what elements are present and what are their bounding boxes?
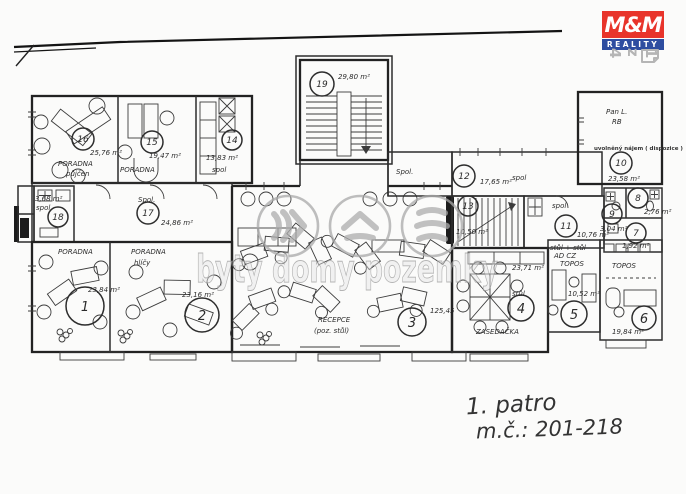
room-4-label2: stůl — [512, 290, 525, 298]
room-1-number: 1 — [81, 300, 89, 315]
room-6-number: 6 — [640, 312, 648, 327]
room-6-label: TOPOS — [612, 262, 637, 270]
room-17-label: Spol. — [138, 196, 155, 204]
room-9-area: 3,04 m² — [600, 225, 628, 233]
room-1-label: PORADNA — [58, 248, 93, 256]
bottom-steps — [60, 340, 646, 361]
plant-scribbles — [57, 329, 272, 346]
room-17-number: 17 — [142, 209, 154, 219]
room-10-note-print: uvolněný nájem ( dispozice ) — [594, 145, 683, 152]
logo-brand: M&M — [602, 11, 664, 38]
room-10-note-hand1: Pan L. — [606, 108, 627, 116]
handwritten-room-range-note: m.č.: 201-218 — [476, 414, 624, 443]
room-10-number: 10 — [615, 159, 627, 169]
room-12-label: spol — [512, 174, 526, 182]
room-15-number: 15 — [146, 138, 158, 148]
left-wing: 16 25,76 m² PORADNA půjčen 15 19,47 m² P… — [18, 96, 272, 352]
room-18-number: 18 — [52, 213, 64, 223]
room-10-area: 23,58 m² — [608, 175, 640, 183]
room-19-number: 19 — [316, 80, 328, 90]
room-12-area: 17,65 m² — [480, 178, 512, 186]
room-12-number: 12 — [458, 172, 470, 182]
room-1-area: 23,84 m² — [88, 286, 120, 294]
room-7-number: 7 — [633, 229, 639, 239]
landing-label: Spol. — [396, 168, 413, 176]
room-15-area: 19,47 m² — [149, 152, 181, 160]
room-5-area: 10,52 m² — [568, 290, 600, 298]
room-4-number: 4 — [517, 302, 525, 317]
room-5-label2: AD CZ — [553, 252, 576, 260]
room-11-label: spol — [552, 202, 566, 210]
room-2-label2: hlíčy — [134, 259, 151, 267]
room-5-label3: TOPOS — [560, 260, 585, 268]
document-icon — [640, 48, 660, 64]
room-15-label: PORADNA — [120, 166, 155, 174]
room-8-area: 2,76 m² — [644, 208, 672, 216]
scan-artifacts — [14, 31, 562, 244]
room-5-number: 5 — [570, 308, 578, 323]
room-2-number: 2 — [198, 309, 206, 324]
room-9-number: 9 — [609, 210, 615, 220]
room-3-label: RECEPCE — [318, 316, 351, 324]
room-3-label2: (poz. stůl) — [314, 327, 349, 335]
room-5-label: stůl + stůl — [550, 244, 586, 252]
room-16-number: 16 — [77, 135, 89, 145]
handwritten-floor-note: 1. patro — [465, 390, 557, 421]
room-6-area: 19,84 m² — [612, 328, 644, 336]
room-3-number: 3 — [408, 316, 416, 331]
corridor-door-arcs — [96, 185, 217, 199]
room-10-note-hand2: RB — [612, 118, 622, 126]
page-indicator: 1 z 4 — [606, 48, 660, 74]
watermark-text: byty domy pozemky — [196, 247, 498, 291]
room-19-area: 29,80 m² — [338, 73, 370, 81]
room-2-label: PORADNA — [131, 248, 166, 256]
room-16-area: 25,76 m² — [90, 149, 122, 157]
room-18-label: spol — [36, 204, 50, 212]
room-11-number: 11 — [560, 222, 571, 232]
stair-tower: 19 29,80 m² — [296, 56, 392, 196]
mm-reality-logo: M&M REALITY — [602, 11, 664, 50]
room-4-area: 23,71 m² — [512, 264, 544, 272]
room-16-label: PORADNA — [58, 160, 93, 168]
room-14-label: spol — [212, 166, 226, 174]
room-14-number: 14 — [226, 136, 238, 146]
room-10-walls — [578, 92, 662, 184]
room-8-number: 8 — [635, 194, 641, 204]
room-14-area: 13,83 m² — [206, 154, 238, 162]
scanned-floor-plan-page: 16 25,76 m² PORADNA půjčen 15 19,47 m² P… — [0, 0, 686, 494]
room-2-area: 23,16 m² — [182, 291, 214, 299]
room-17-area: 24,86 m² — [161, 219, 193, 227]
room-18-area: 3,68 m² — [35, 195, 63, 203]
room-13-number: 13 — [462, 202, 474, 212]
room-4-label: ZASEDAČKA — [475, 327, 519, 336]
room-16-label2: půjčen — [65, 170, 89, 178]
